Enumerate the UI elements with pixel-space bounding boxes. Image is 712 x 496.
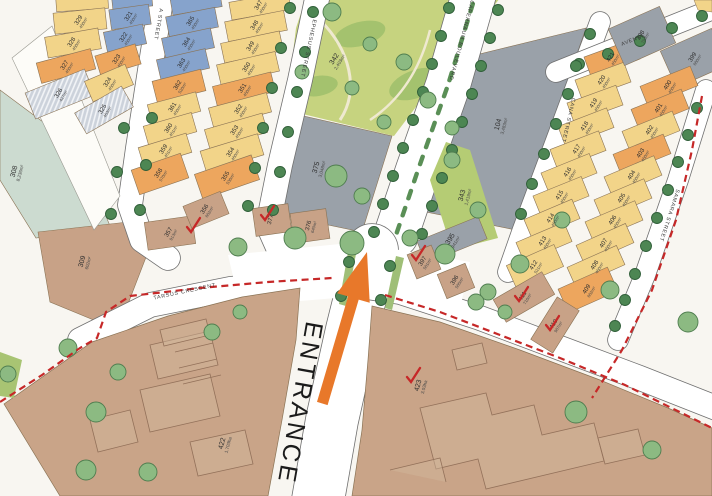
tree-icon <box>420 92 436 108</box>
tree-icon <box>493 5 504 16</box>
tree-icon <box>344 257 355 268</box>
tree-icon <box>683 130 694 141</box>
tree-icon <box>485 33 496 44</box>
tree-icon <box>402 230 418 246</box>
tree-icon <box>468 294 484 310</box>
tree-icon <box>398 143 409 154</box>
tree-icon <box>292 87 303 98</box>
tree-icon <box>340 231 364 255</box>
tree-icon <box>445 121 459 135</box>
tree-icon <box>630 269 641 280</box>
tree-icon <box>119 123 130 134</box>
tree-icon <box>610 321 621 332</box>
tree-icon <box>59 339 77 357</box>
tree-icon <box>396 54 412 70</box>
tree-icon <box>427 59 438 70</box>
tree-icon <box>444 3 455 14</box>
tree-icon <box>106 209 117 220</box>
tree-icon <box>641 241 652 252</box>
tree-icon <box>233 305 247 319</box>
tree-icon <box>258 123 269 134</box>
tree-icon <box>467 89 478 100</box>
tree-icon <box>643 441 661 459</box>
tree-icon <box>516 209 527 220</box>
tree-icon <box>284 227 306 249</box>
tree-icon <box>243 201 254 212</box>
tree-icon <box>275 167 286 178</box>
tree-icon <box>678 312 698 332</box>
tree-icon <box>378 199 389 210</box>
tree-icon <box>498 305 512 319</box>
tree-icon <box>527 179 538 190</box>
tree-icon <box>511 255 529 273</box>
tree-icon <box>601 281 619 299</box>
tree-icon <box>697 11 708 22</box>
tree-icon <box>551 119 562 130</box>
tree-icon <box>147 113 158 124</box>
tree-icon <box>110 364 126 380</box>
tree-icon <box>408 115 419 126</box>
tree-icon <box>308 7 319 18</box>
tree-icon <box>283 127 294 138</box>
tree-icon <box>323 3 341 21</box>
tree-icon <box>345 81 359 95</box>
tree-icon <box>663 185 674 196</box>
tree-icon <box>444 152 460 168</box>
tree-icon <box>376 295 387 306</box>
tree-icon <box>76 460 96 480</box>
tree-icon <box>112 167 123 178</box>
tree-icon <box>565 401 587 423</box>
tree-icon <box>388 171 399 182</box>
site-plan-map: 329450m²328450m²327450m²326427m²321450m²… <box>0 0 712 496</box>
tree-icon <box>369 227 380 238</box>
tree-icon <box>437 173 448 184</box>
tree-icon <box>427 201 438 212</box>
tree-icon <box>135 205 146 216</box>
tree-icon <box>470 202 486 218</box>
tree-icon <box>585 29 596 40</box>
tree-icon <box>377 115 391 129</box>
tree-icon <box>250 163 261 174</box>
tree-icon <box>436 31 447 42</box>
tree-icon <box>667 23 678 34</box>
tree-icon <box>276 43 287 54</box>
tree-icon <box>354 188 370 204</box>
tree-icon <box>363 37 377 51</box>
tree-icon <box>204 324 220 340</box>
tree-icon <box>86 402 106 422</box>
tree-icon <box>267 83 278 94</box>
tree-icon <box>476 61 487 72</box>
tree-icon <box>620 295 631 306</box>
master-plan-svg: 329450m²328450m²327450m²326427m²321450m²… <box>0 0 712 496</box>
tree-icon <box>229 238 247 256</box>
tree-icon <box>141 160 152 171</box>
tree-icon <box>325 165 347 187</box>
tree-icon <box>571 61 582 72</box>
tree-icon <box>673 157 684 168</box>
tree-icon <box>385 261 396 272</box>
tree-icon <box>285 3 296 14</box>
tree-icon <box>539 149 550 160</box>
tree-icon <box>139 463 157 481</box>
tree-icon <box>0 366 16 382</box>
tree-icon <box>652 213 663 224</box>
